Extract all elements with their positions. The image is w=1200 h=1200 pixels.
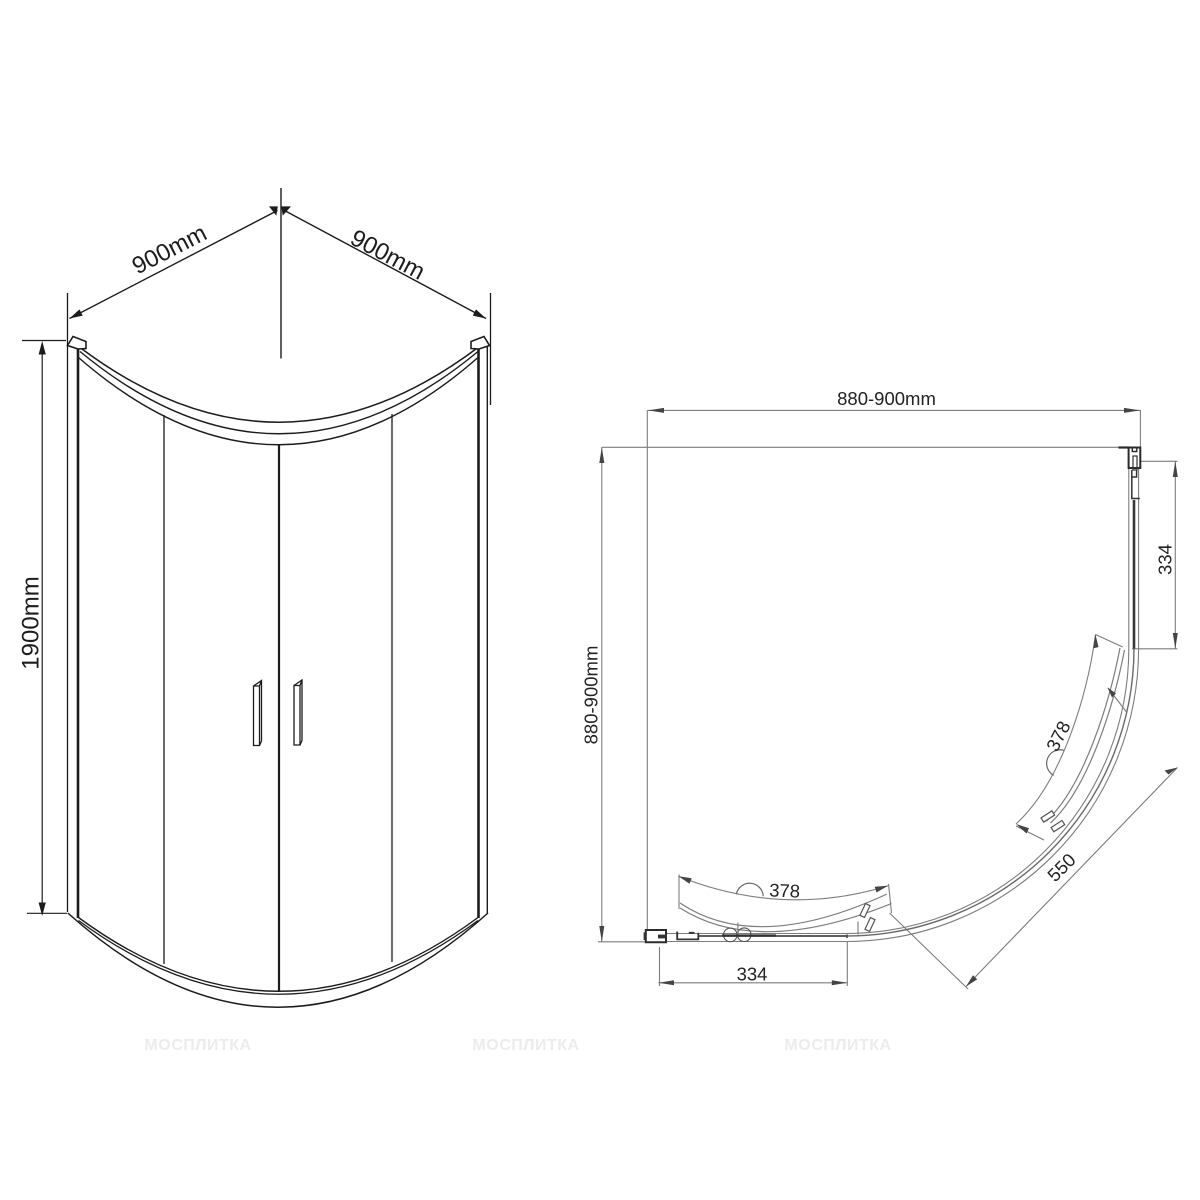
svg-text:МОСПЛИТКА: МОСПЛИТКА [144,1037,251,1054]
svg-text:880-900mm: 880-900mm [580,646,601,745]
svg-text:МОСПЛИТКА: МОСПЛИТКА [472,1037,579,1054]
svg-text:334: 334 [737,964,768,985]
svg-text:МОСПЛИТКА: МОСПЛИТКА [784,1037,891,1054]
svg-text:334: 334 [1155,544,1176,575]
svg-text:1900mm: 1900mm [17,576,44,669]
svg-text:880-900mm: 880-900mm [837,388,936,409]
svg-text:378: 378 [769,879,801,901]
